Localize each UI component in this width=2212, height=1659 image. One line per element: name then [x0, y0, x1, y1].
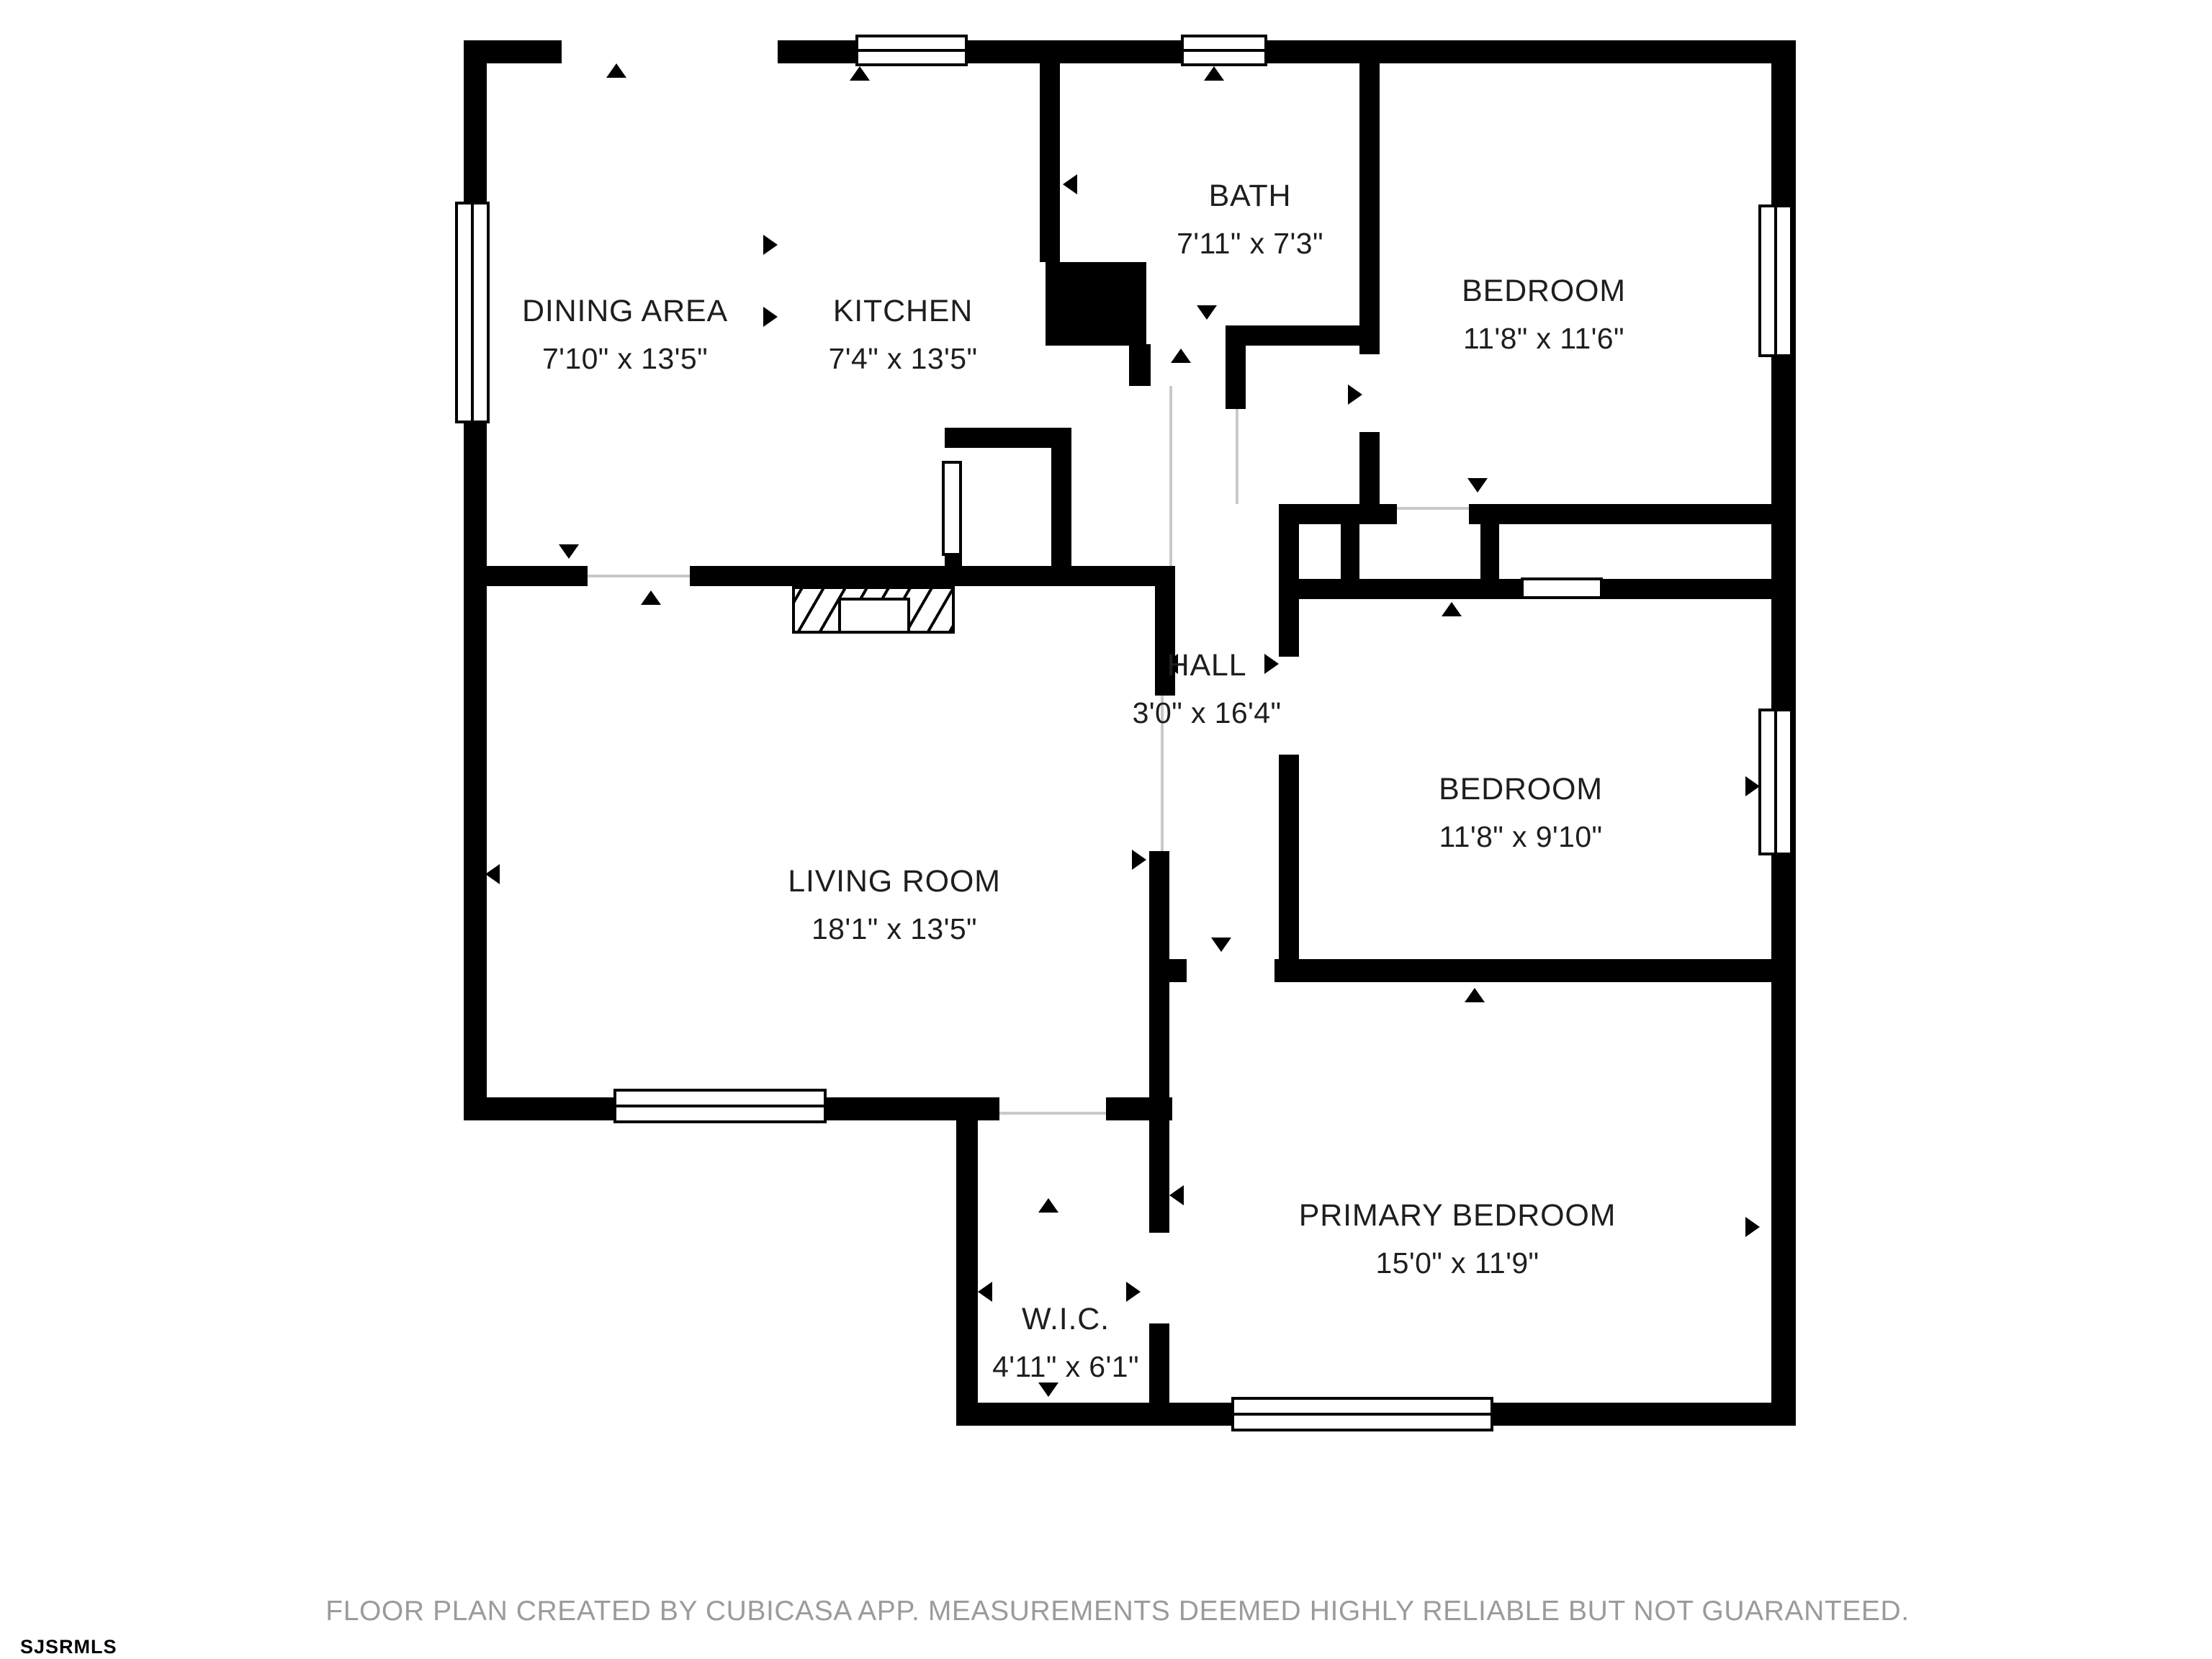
room-dims: 11'8" x 11'6" — [1462, 323, 1626, 357]
window-bedroom-top-right — [1758, 204, 1793, 357]
floor-plan: DINING AREA 7'10" x 13'5" KITCHEN 7'4" x… — [0, 0, 2212, 1659]
room-dims: 3'0" x 16'4" — [1133, 697, 1282, 732]
kitchen-window-arrow-icon — [850, 66, 870, 81]
footer-disclaimer: FLOOR PLAN CREATED BY CUBICASA APP. MEAS… — [325, 1596, 1909, 1629]
room-name: W.I.C. — [992, 1302, 1139, 1338]
wic-alcove-arrow-icon — [1038, 1198, 1058, 1213]
room-name: LIVING ROOM — [788, 864, 1001, 900]
wall-closet-top-left — [1279, 504, 1397, 524]
wall-dining-living-divider-a — [487, 566, 588, 586]
window-bath-top — [1181, 35, 1267, 66]
room-name: PRIMARY BEDROOM — [1299, 1198, 1617, 1234]
hall-primary-door-arrow-icon — [1211, 938, 1231, 952]
room-label-wic: W.I.C. 4'11" x 6'1" — [992, 1302, 1139, 1385]
room-label-living: LIVING ROOM 18'1" x 13'5" — [788, 864, 1001, 948]
living-window-arrow-icon — [485, 864, 500, 884]
window-kitchen-top — [855, 35, 968, 66]
wall-closet-bottom-left — [1279, 579, 1521, 599]
window-living-bottom — [613, 1089, 827, 1123]
room-dims: 7'11" x 7'3" — [1177, 228, 1323, 262]
room-dims: 15'0" x 11'9" — [1299, 1247, 1617, 1282]
closet-cased-opening — [1521, 577, 1603, 599]
kitchen-door-arrow-icon — [763, 307, 778, 327]
wic-door-arrow-icon — [1126, 1282, 1141, 1302]
entry-door-arrow-icon — [606, 63, 626, 78]
dining-passage-arrow-icon — [559, 544, 579, 559]
room-name: HALL — [1133, 648, 1282, 684]
living-hall-arrow-icon — [1132, 850, 1146, 870]
wall-bath-right — [1359, 40, 1380, 354]
wall-wic-left — [956, 1097, 978, 1426]
window-primary-bottom — [1231, 1397, 1493, 1431]
wall-pantry-right — [1051, 428, 1071, 572]
room-name: BEDROOM — [1439, 772, 1603, 808]
bedroom-mid-window-arrow-icon — [1745, 776, 1760, 796]
closet-opening-arrow-icon — [1442, 602, 1462, 616]
room-label-primary: PRIMARY BEDROOM 15'0" x 11'9" — [1299, 1198, 1617, 1282]
wall-closet-top-right — [1469, 504, 1796, 524]
wall-bath-bottom — [1226, 325, 1359, 346]
window-bedroom-mid-right — [1758, 709, 1793, 855]
primary-window-arrow-icon — [1745, 1217, 1760, 1237]
floor-plan-page: DINING AREA 7'10" x 13'5" KITCHEN 7'4" x… — [0, 0, 2212, 1659]
room-dims: 11'8" x 9'10" — [1439, 821, 1603, 855]
kitchen-door-arrow-icon — [763, 235, 778, 255]
room-name: BEDROOM — [1462, 274, 1626, 310]
room-label-dining: DINING AREA 7'10" x 13'5" — [522, 294, 728, 377]
wall-bedroom-mid-left-b — [1279, 755, 1299, 959]
window-dining-left — [455, 202, 490, 423]
room-label-hall: HALL 3'0" x 16'4" — [1133, 648, 1282, 732]
wic-arrow-icon — [978, 1282, 992, 1302]
hall-boundary-line — [1236, 409, 1238, 504]
wall-kitchen-bath-divider — [1040, 40, 1060, 262]
wall-hall-stub-right — [1226, 344, 1246, 409]
wall-closet-bottom-right — [1603, 579, 1796, 599]
wall-hall-stub-left — [1129, 344, 1151, 386]
room-dims: 7'4" x 13'5" — [829, 343, 978, 377]
living-alcove-boundary-line — [999, 1112, 1106, 1115]
bedroom-top-door-arrow-icon — [1348, 385, 1362, 405]
room-name: KITCHEN — [829, 294, 978, 330]
wall-hall-left-lower — [1149, 851, 1169, 1233]
pantry-cased-opening — [942, 461, 962, 556]
room-label-bedroom-top: BEDROOM 11'8" x 11'6" — [1462, 274, 1626, 357]
room-dims: 7'10" x 13'5" — [522, 343, 728, 377]
hall-bath-door-arrow-icon — [1171, 349, 1191, 363]
bath-door-arrow-icon — [1063, 174, 1077, 194]
room-label-bedroom-mid: BEDROOM 11'8" x 9'10" — [1439, 772, 1603, 855]
dining-passage-arrow-icon — [641, 590, 661, 605]
closet-door-arrow-icon — [1467, 478, 1488, 493]
mls-watermark: SJSRMLS — [20, 1636, 117, 1658]
dining-living-boundary-line — [588, 575, 690, 577]
closet-opening-line — [1397, 507, 1469, 510]
primary-wic-arrow-icon — [1169, 1185, 1184, 1205]
room-label-kitchen: KITCHEN 7'4" x 13'5" — [829, 294, 978, 377]
room-label-bath: BATH 7'11" x 7'3" — [1177, 179, 1323, 262]
room-dims: 4'11" x 6'1" — [992, 1351, 1139, 1385]
room-dims: 18'1" x 13'5" — [788, 913, 1001, 948]
fireplace-hearth — [838, 598, 910, 634]
primary-door-arrow-icon — [1465, 988, 1485, 1002]
wall-primary-top — [1274, 959, 1796, 982]
room-name: DINING AREA — [522, 294, 728, 330]
bath-hall-door-arrow-icon — [1197, 305, 1217, 320]
chimney-block — [1046, 262, 1146, 346]
wall-wic-right-lower — [1149, 1323, 1169, 1426]
wall-dining-living-divider-b — [690, 566, 1169, 586]
hall-boundary-line — [1169, 386, 1172, 566]
wall-hall-bottom-stub — [1168, 959, 1187, 982]
room-name: BATH — [1177, 179, 1323, 215]
bath-window-arrow-icon — [1204, 66, 1224, 81]
